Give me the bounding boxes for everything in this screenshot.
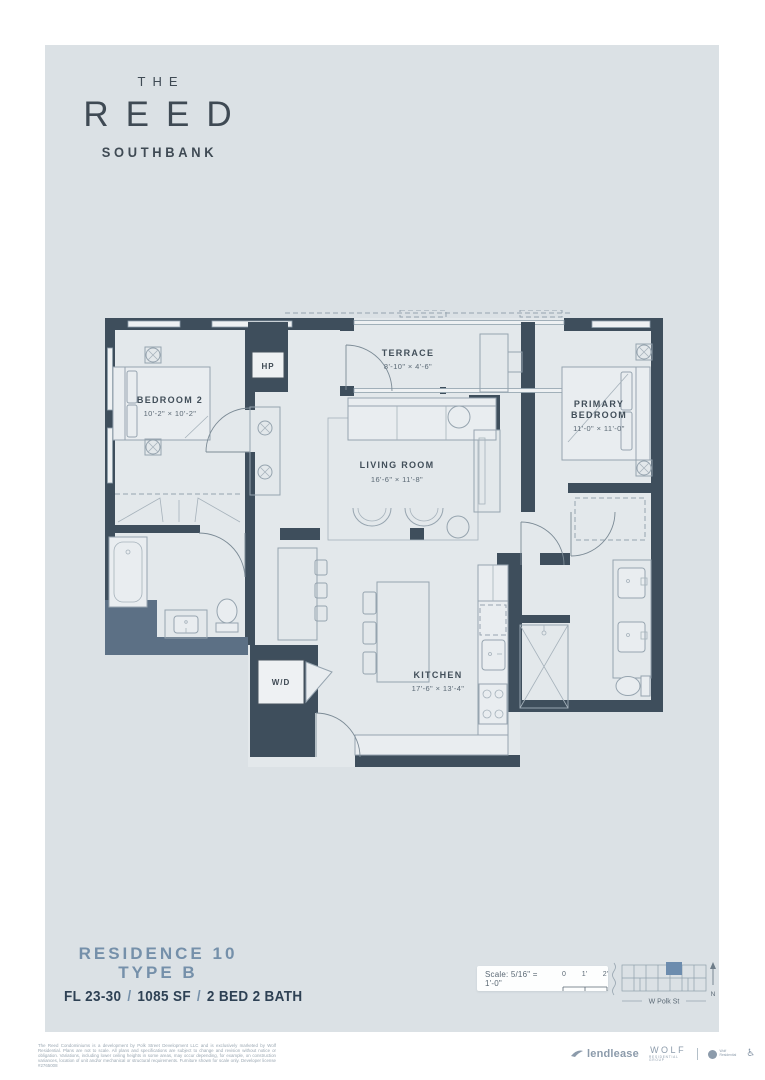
accessibility-icon: ♿	[746, 1049, 755, 1059]
scale-tick-2: 2'	[603, 971, 608, 978]
scale-label: Scale: 5/16" = 1'-0"	[477, 970, 554, 988]
overhang-dashed-lines	[285, 310, 570, 317]
living-dims: 16'-6" × 11'-8"	[371, 475, 423, 484]
scale-box: Scale: 5/16" = 1'-0" 0 1' 2'	[477, 966, 608, 991]
residence-title: RESIDENCE 10 TYPE B	[58, 944, 258, 982]
lendlease-logo: lendlease	[570, 1048, 639, 1060]
lendlease-swoosh-icon	[570, 1049, 584, 1059]
north-arrow-icon: N	[710, 962, 716, 998]
river-line	[613, 963, 616, 995]
page: { "brand": { "the": "THE", "name": "REED…	[0, 0, 765, 1080]
scale-bar-graphic	[562, 985, 608, 991]
wolf-residential-logo: Wolf Residential	[708, 1050, 736, 1059]
wolf-subtitle: RESIDENTIAL GROUP	[649, 1056, 687, 1062]
wd-label: W/D	[272, 678, 291, 687]
bathtub	[109, 537, 147, 607]
specs-beds: 2 BED 2 BATH	[207, 988, 303, 1005]
footer-logos: lendlease WOLF RESIDENTIAL GROUP Wolf Re…	[570, 1045, 765, 1063]
primary-label-1: PRIMARY	[574, 399, 624, 409]
primary-label-2: BEDROOM	[571, 410, 627, 420]
residence-line2: TYPE B	[58, 963, 258, 982]
hp-label-1: HP	[261, 362, 274, 371]
scale-tick-0: 0	[562, 971, 566, 978]
toilet	[216, 599, 238, 632]
unit-location-marker	[666, 962, 682, 975]
wolf-residential-line2: Residential	[720, 1054, 737, 1058]
kitchen-dims: 17'-6" × 13'-4"	[412, 684, 465, 693]
lendlease-name: lendlease	[587, 1048, 639, 1060]
bedroom2-label: BEDROOM 2	[137, 395, 203, 405]
brand-the: THE	[52, 74, 270, 89]
wolf-residential-mark-icon	[708, 1050, 717, 1059]
street-label: W Polk St	[649, 999, 680, 1006]
specs-area: 1085 SF	[137, 988, 191, 1005]
scale-bar: 0 1' 2'	[562, 971, 608, 987]
living-label: LIVING ROOM	[360, 460, 435, 470]
residence-line1: RESIDENCE 10	[58, 944, 258, 963]
residence-specs: FL 23-30 / 1085 SF / 2 BED 2 BATH	[64, 988, 303, 1005]
wolf-logo: WOLF RESIDENTIAL GROUP	[649, 1046, 687, 1063]
scale-tick-1: 1'	[582, 971, 587, 978]
kitchen-label: KITCHEN	[413, 670, 462, 680]
terrace-dims: 8'-10" × 4'-6"	[384, 362, 432, 371]
floorplan: HP HP BEDROOM 2 10'-2" × 10'-2"	[100, 310, 668, 775]
hp-closet-1: HP	[248, 322, 288, 392]
primary-dims: 11'-0" × 11'-0"	[573, 424, 625, 433]
brand-logo: THE REED SOUTHBANK	[45, 74, 270, 160]
disclaimer-text: The Reed Condominiums is a development b…	[38, 1044, 276, 1069]
specs-separator: /	[195, 988, 203, 1005]
key-map: N W Polk St	[610, 955, 718, 1012]
logo-divider	[697, 1048, 698, 1060]
specs-floors: FL 23-30	[64, 988, 121, 1005]
terrace-label: TERRACE	[382, 348, 435, 358]
brand-name: REED	[62, 95, 270, 135]
building-footprint	[622, 965, 706, 991]
bedroom2-dims: 10'-2" × 10'-2"	[144, 409, 197, 418]
toilet	[616, 676, 650, 696]
brand-sub: SOUTHBANK	[58, 144, 261, 160]
specs-separator: /	[126, 988, 134, 1005]
north-label: N	[711, 991, 716, 998]
wolf-name: WOLF	[650, 1046, 686, 1055]
